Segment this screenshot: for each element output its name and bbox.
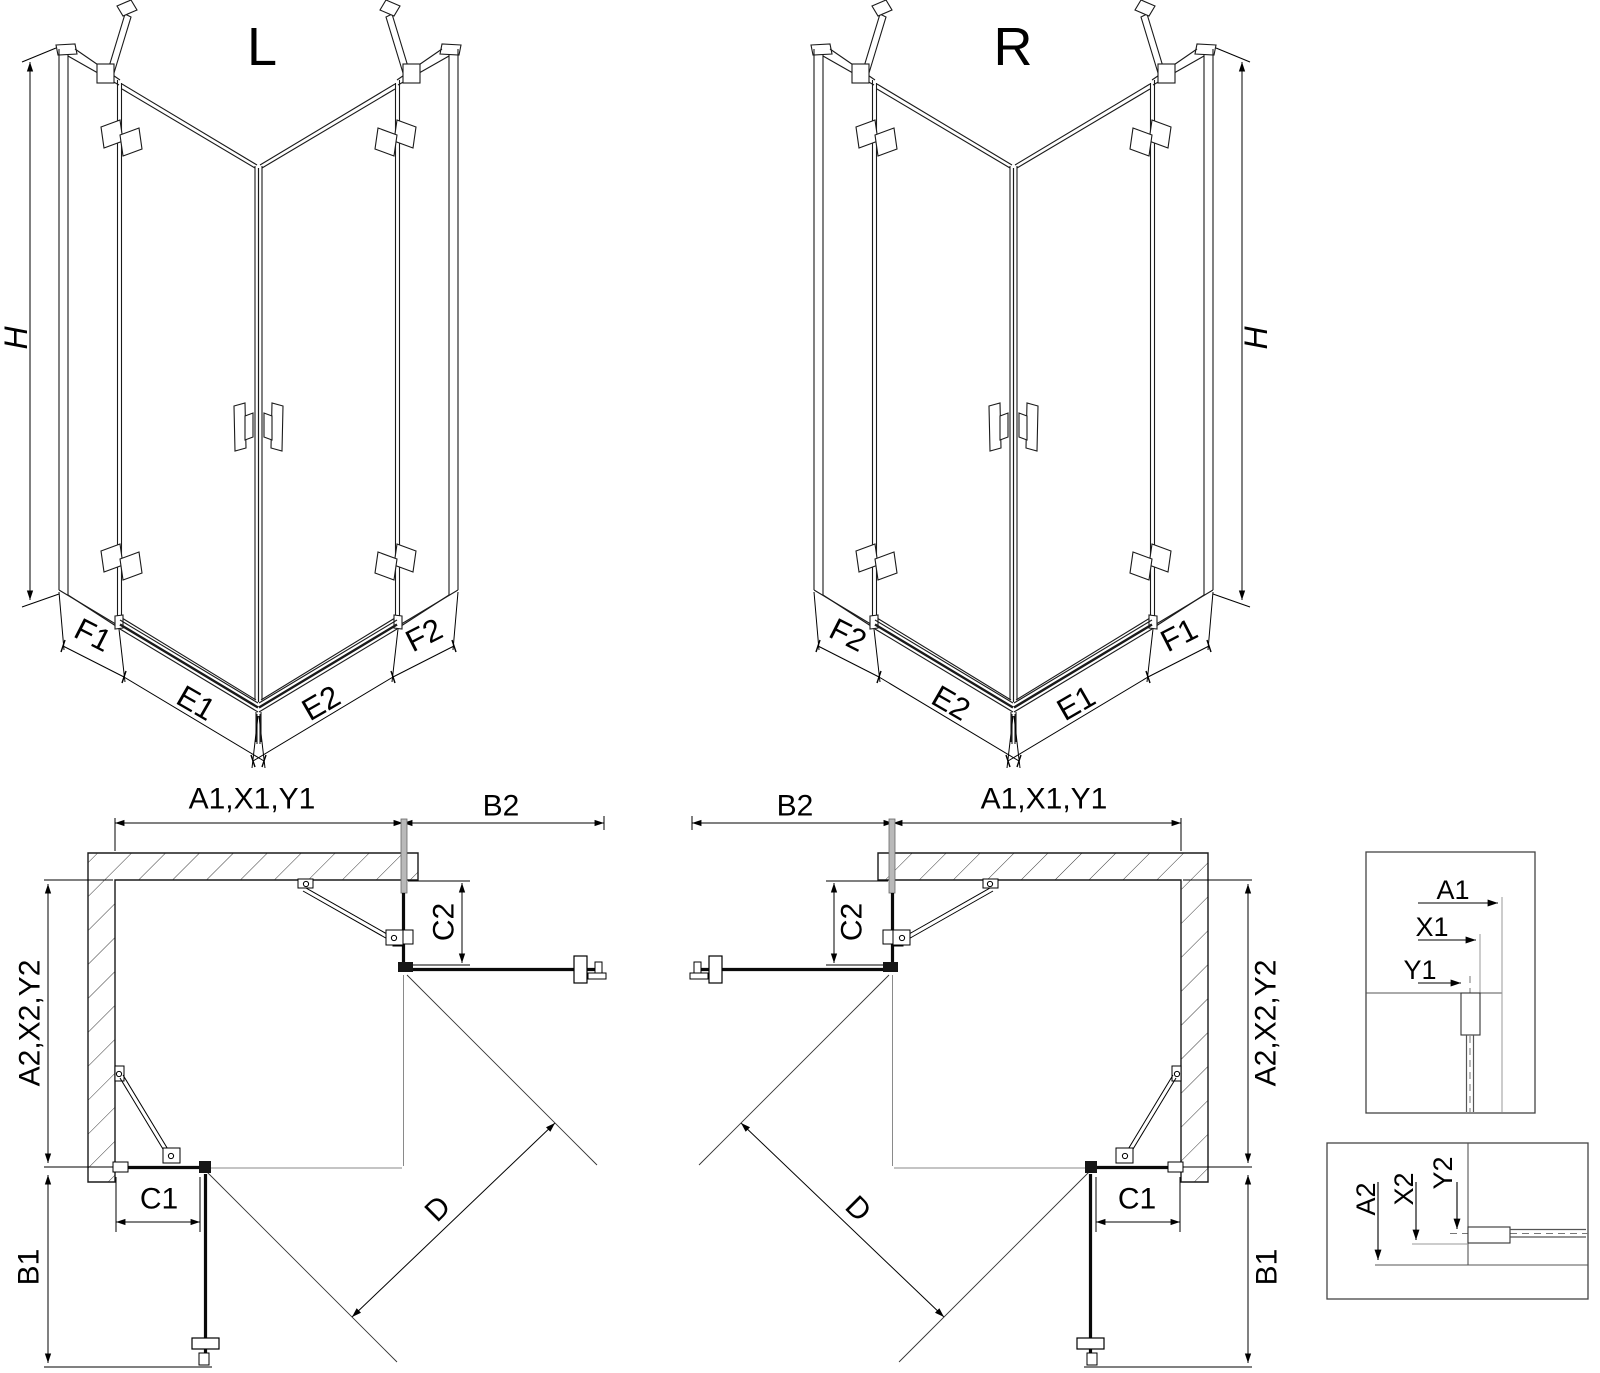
dim-label-a2x2y2-right: A2,X2,Y2 (1250, 960, 1283, 1087)
dim-label-c2-left: C2 (428, 903, 461, 941)
dim-label-f2-right: F2 (824, 611, 872, 659)
plan-view-right (690, 816, 1252, 1367)
dim-label-c1-right: C1 (1118, 1183, 1156, 1216)
technical-drawing-page: L H F1 E1 E2 F2 R H F2 E2 E1 F1 A1,X1,Y1… (0, 0, 1600, 1373)
detail-label-y1: Y1 (1403, 955, 1436, 985)
detail-label-x2: X2 (1389, 1172, 1419, 1205)
dim-label-a1x1y1-left: A1,X1,Y1 (189, 783, 316, 816)
detail-label-x1: X1 (1415, 912, 1448, 942)
dim-label-a2x2y2-left: A2,X2,Y2 (14, 960, 47, 1087)
view-title-left: L (247, 17, 277, 77)
dim-label-b2-right: B2 (777, 790, 814, 823)
shower-enclosure-technical-drawing: L H F1 E1 E2 F2 R H F2 E2 E1 F1 A1,X1,Y1… (0, 0, 1600, 1373)
dim-label-f2-left: F2 (400, 611, 448, 659)
dim-label-c1-left: C1 (140, 1183, 178, 1216)
dim-label-f1-left: F1 (69, 611, 117, 659)
dim-label-c2-right: C2 (836, 903, 869, 941)
dim-label-b1-left: B1 (13, 1249, 46, 1286)
plan-view-left (44, 816, 606, 1367)
perspective-view-right (811, 0, 1250, 768)
dim-label-a1x1y1-right: A1,X1,Y1 (981, 783, 1108, 816)
detail-label-y2: Y2 (1428, 1156, 1458, 1189)
dim-label-f1-right: F1 (1155, 611, 1203, 659)
wall-hatch-left-plan (88, 853, 418, 1182)
dim-label-h-left: H (0, 326, 34, 350)
perspective-view-left (22, 0, 461, 768)
view-title-right: R (994, 17, 1033, 77)
detail-label-a1: A1 (1436, 875, 1469, 905)
detail-label-a2: A2 (1351, 1182, 1381, 1215)
dim-label-b1-right: B1 (1251, 1249, 1284, 1286)
dim-label-b2-left: B2 (483, 790, 520, 823)
dim-label-h-right: H (1238, 326, 1274, 350)
wall-hatch-right-plan (878, 853, 1208, 1182)
